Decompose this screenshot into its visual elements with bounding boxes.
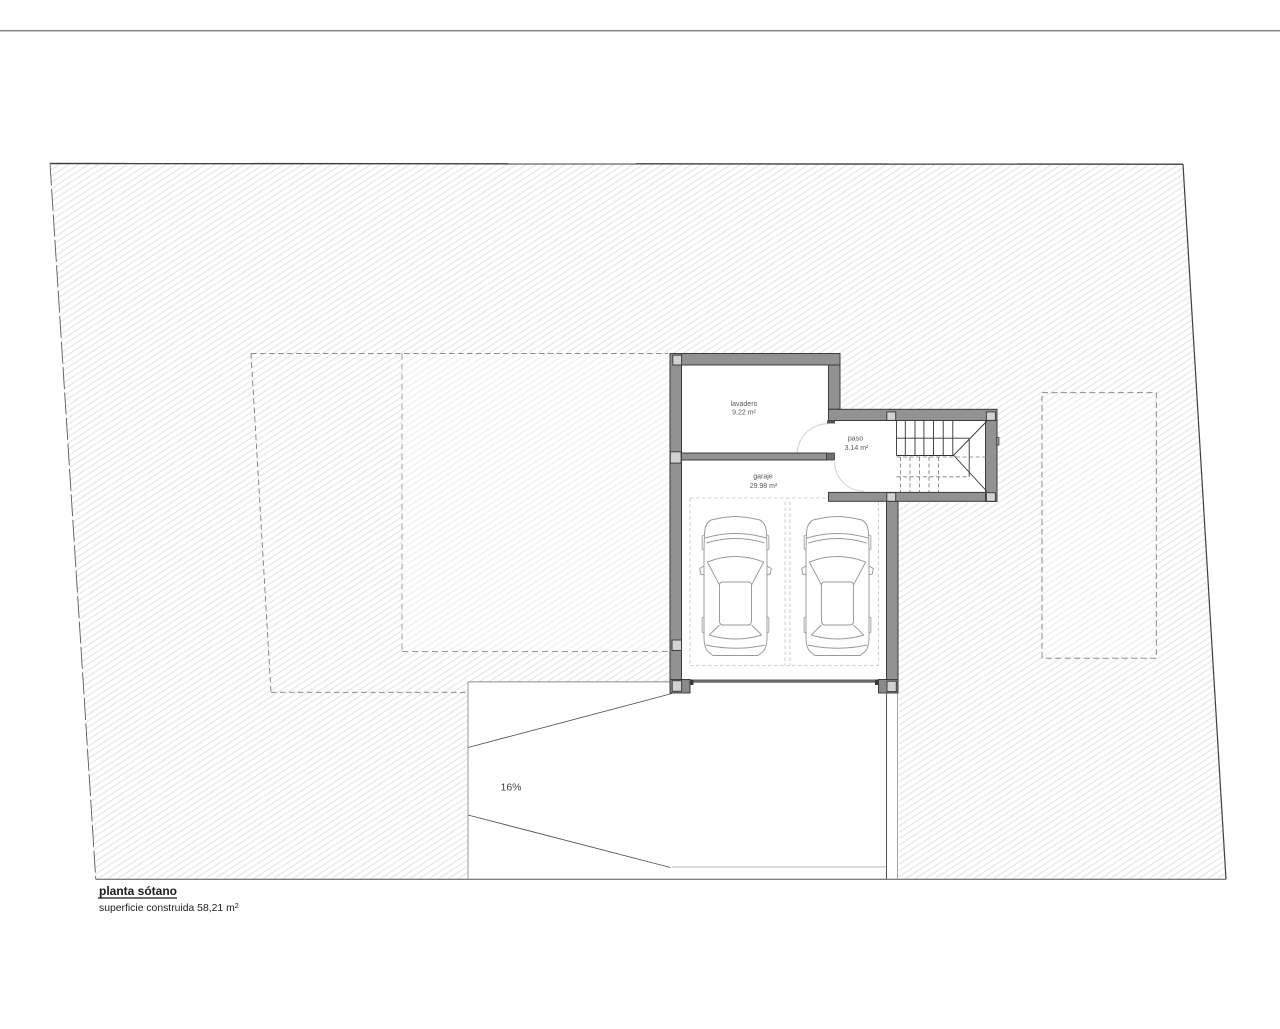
svg-text:superficie construida 58,21 m2: superficie construida 58,21 m2 [99,903,239,914]
svg-text:16%: 16% [500,782,521,794]
svg-text:planta sótano: planta sótano [99,884,177,898]
svg-text:3.14 m²: 3.14 m² [845,445,869,452]
svg-text:9.22 m²: 9.22 m² [732,410,756,417]
svg-text:paso: paso [848,436,863,443]
svg-text:garaje: garaje [753,474,773,481]
svg-text:lavadero: lavadero [731,401,758,408]
svg-text:29.98 m²: 29.98 m² [750,483,778,490]
